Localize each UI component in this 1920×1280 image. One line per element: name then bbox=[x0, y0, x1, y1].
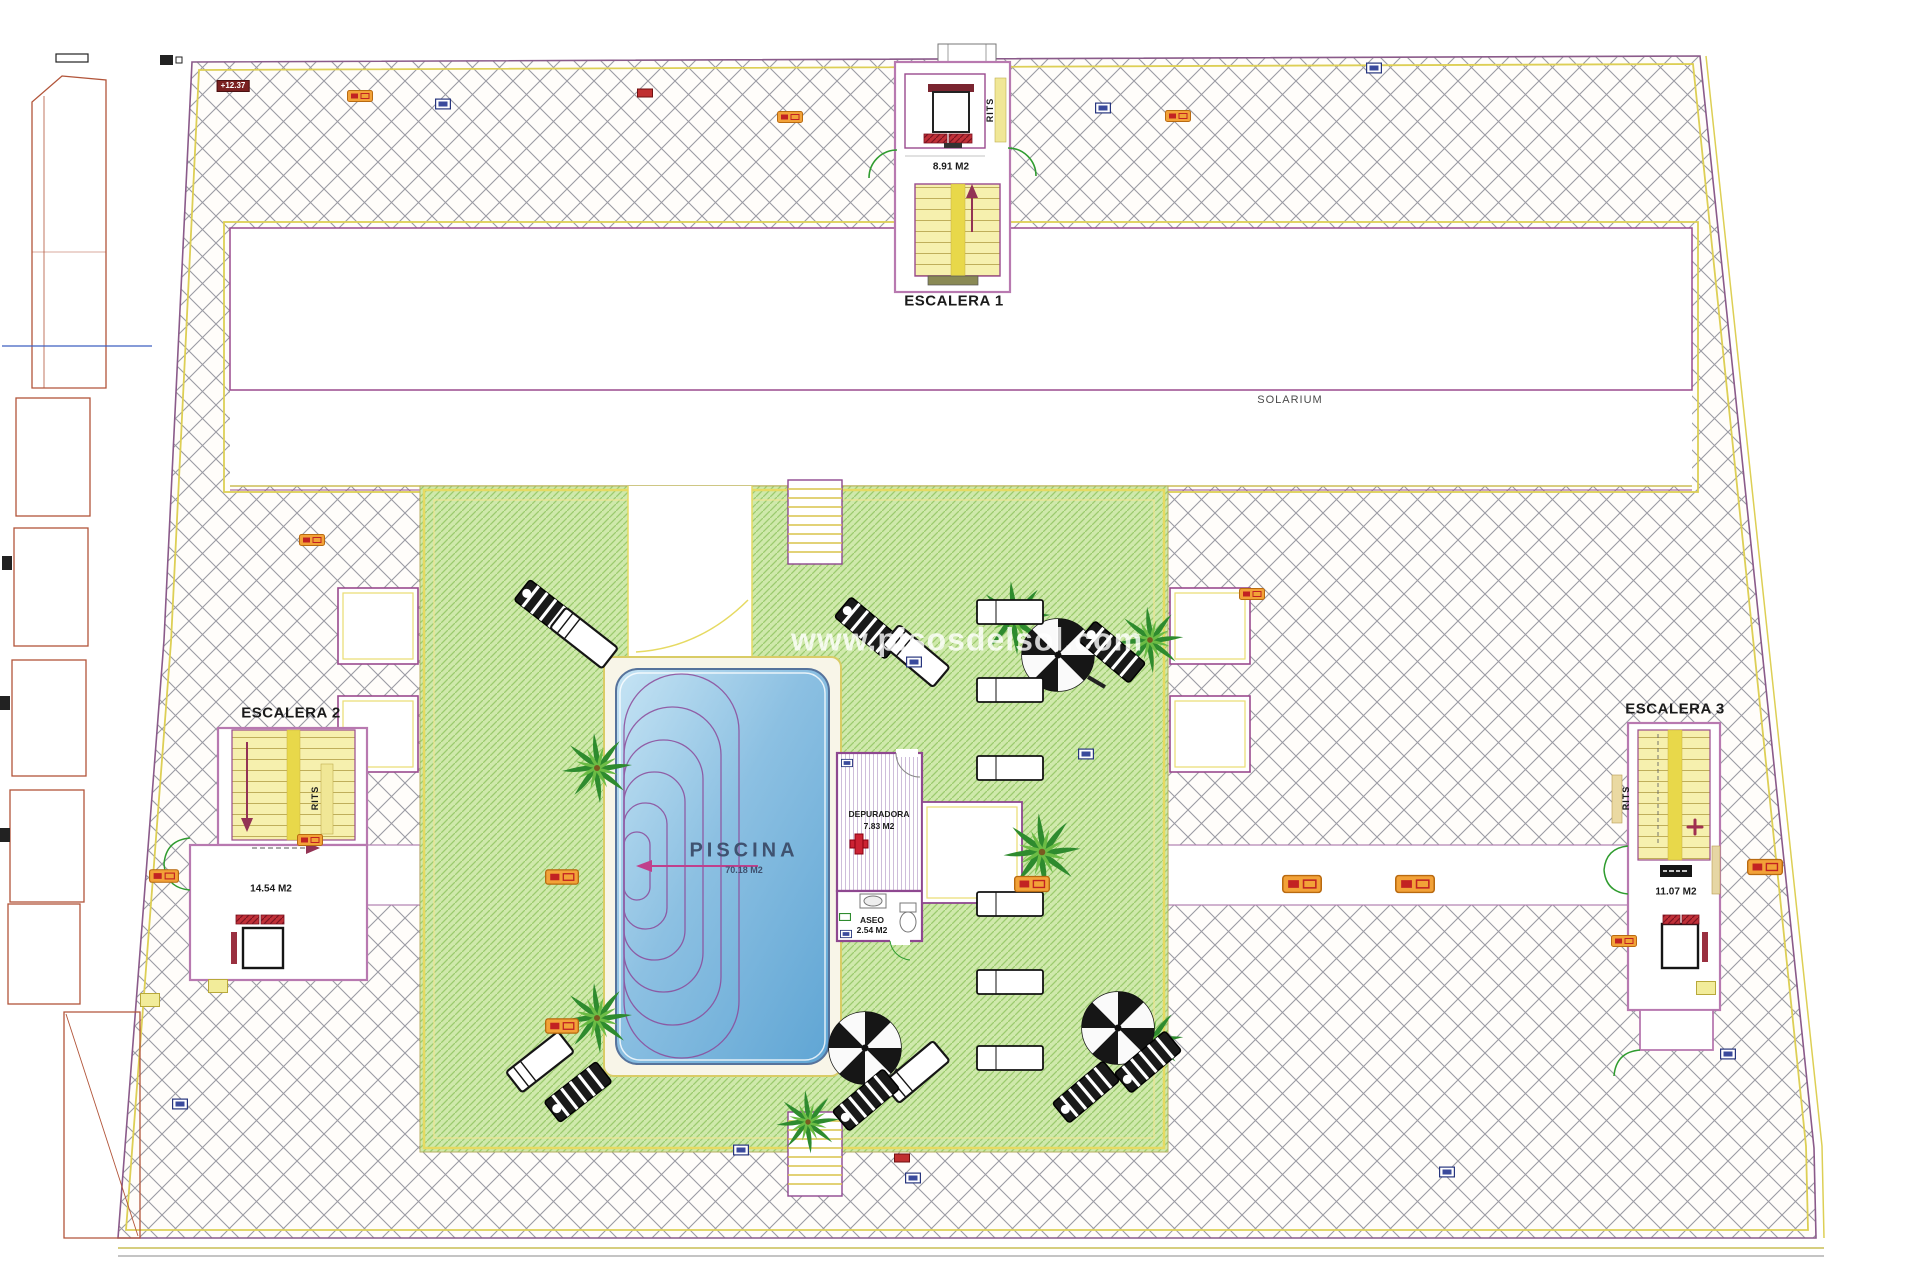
sun-lounger-flat bbox=[977, 600, 1043, 624]
yellow-marker bbox=[1697, 982, 1716, 995]
orange-marker bbox=[300, 535, 325, 546]
navy-marker bbox=[436, 99, 451, 109]
solarium-label: SOLARIUM bbox=[1257, 394, 1322, 406]
orange-marker bbox=[1748, 859, 1783, 874]
orange-marker bbox=[298, 835, 323, 846]
sun-lounger-flat bbox=[977, 970, 1043, 994]
yellow-marker bbox=[141, 994, 160, 1007]
pool-area-label: 70.18 M2 bbox=[725, 865, 763, 875]
pool-label: PISCINA bbox=[689, 840, 798, 863]
orange-marker bbox=[1240, 589, 1265, 600]
sink-icon bbox=[860, 894, 886, 908]
orange-marker bbox=[1283, 876, 1321, 893]
orange-marker bbox=[1396, 876, 1434, 893]
sun-lounger-flat bbox=[977, 892, 1043, 916]
orange-marker bbox=[348, 91, 373, 102]
deck-grill-top bbox=[788, 480, 842, 564]
navy-marker bbox=[840, 930, 851, 938]
rits-label-1: RITS bbox=[985, 98, 995, 123]
navy-marker bbox=[841, 759, 852, 767]
orange-marker bbox=[1166, 111, 1191, 122]
elevator-shaft bbox=[243, 928, 283, 968]
watermark: www.pisosdelsol.com bbox=[791, 622, 1143, 659]
navy-marker bbox=[1079, 749, 1094, 759]
deck-platform bbox=[922, 802, 1022, 903]
aseo-label: ASEO bbox=[860, 915, 884, 925]
deck-access-path bbox=[628, 486, 752, 664]
toilet-icon bbox=[900, 903, 916, 932]
aseo-area: 2.54 M2 bbox=[857, 925, 888, 935]
navy-marker bbox=[1440, 1167, 1455, 1177]
orange-marker bbox=[1612, 936, 1637, 947]
rits-label-3: RITS bbox=[1621, 786, 1631, 811]
sun-lounger-flat bbox=[977, 1046, 1043, 1070]
red-marker bbox=[895, 1154, 910, 1162]
sun-lounger-flat bbox=[977, 756, 1043, 780]
elevator-door bbox=[236, 915, 259, 924]
red-marker bbox=[638, 89, 653, 97]
reversed-label-box bbox=[1660, 865, 1692, 877]
green-marker bbox=[840, 914, 851, 921]
navy-marker bbox=[906, 1173, 921, 1183]
elevator-shaft bbox=[1662, 924, 1698, 968]
escalera-2-area: 14.54 M2 bbox=[250, 884, 292, 895]
corridor-west bbox=[367, 845, 420, 905]
orange-marker bbox=[1015, 876, 1050, 891]
navy-marker bbox=[1096, 103, 1111, 113]
depuradora-label: DEPURADORA bbox=[849, 809, 910, 819]
navy-marker bbox=[173, 1099, 188, 1109]
level-marker-badge: +12.37 bbox=[217, 80, 250, 92]
navy-marker bbox=[1367, 63, 1382, 73]
depuradora-area: 7.83 M2 bbox=[864, 821, 895, 831]
navy-marker bbox=[907, 657, 922, 667]
depuradora-room bbox=[837, 749, 922, 891]
escalera-3-area: 11.07 M2 bbox=[1655, 887, 1696, 898]
orange-marker bbox=[778, 112, 803, 123]
sun-lounger-flat bbox=[977, 678, 1043, 702]
orange-marker bbox=[546, 1019, 579, 1033]
yellow-marker bbox=[209, 980, 228, 993]
top-edge-glyphs bbox=[56, 54, 182, 65]
elevator-shaft bbox=[933, 92, 969, 132]
floor-plan-canvas: ESCALERA 1 8.91 M2 RITS ESCALERA 2 14.54… bbox=[0, 0, 1920, 1280]
swimming-pool bbox=[604, 657, 841, 1076]
adjacent-structures bbox=[8, 76, 140, 1238]
escalera-3-label: ESCALERA 3 bbox=[1625, 701, 1724, 718]
navy-marker bbox=[734, 1145, 749, 1155]
escalera-1-area: 8.91 M2 bbox=[933, 162, 969, 173]
orange-marker bbox=[150, 870, 179, 883]
navy-marker bbox=[1721, 1049, 1736, 1059]
elevator-door bbox=[1663, 915, 1680, 924]
rits-label-2: RITS bbox=[310, 786, 320, 811]
elevator-door bbox=[924, 134, 947, 143]
escalera-1-label: ESCALERA 1 bbox=[904, 293, 1003, 310]
orange-marker bbox=[546, 870, 579, 884]
escalera-2-label: ESCALERA 2 bbox=[241, 705, 340, 722]
